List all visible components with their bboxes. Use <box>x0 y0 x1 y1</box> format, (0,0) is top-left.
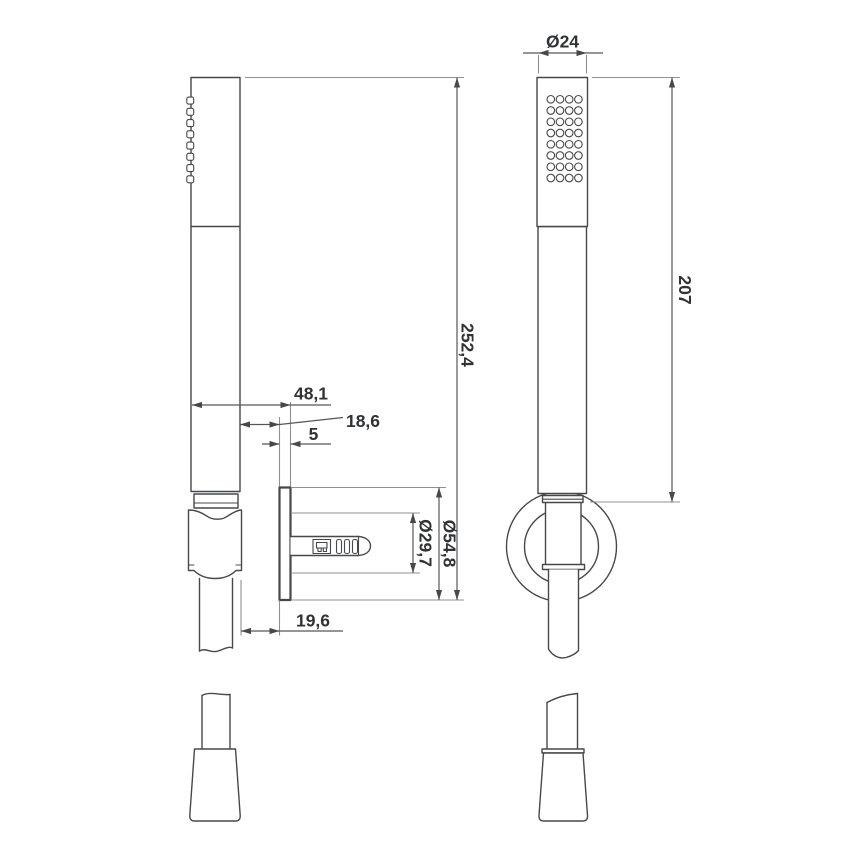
hose-connector-front <box>539 694 588 822</box>
dim-hose-wall-gap-label: 19,6 <box>296 611 330 631</box>
dim-handle-wall-gap-label: 18,6 <box>346 411 380 431</box>
handle-connector-ring-side <box>194 494 238 508</box>
dim-wall-to-front-label: 48,1 <box>294 384 328 404</box>
shower-hose-front <box>549 570 579 658</box>
shower-technical-drawing: 48,1 18,6 5 19,6 Ø29,7 Ø54,8 252,4 <box>0 0 868 868</box>
holder-side <box>189 510 242 579</box>
wall-anchor <box>291 537 371 556</box>
dim-plate-thickness-label: 5 <box>309 424 319 444</box>
dim-total-length-label: 252,4 <box>458 323 478 367</box>
hose-flange-front <box>543 565 585 570</box>
drawing-canvas: 48,1 18,6 5 19,6 Ø29,7 Ø54,8 252,4 <box>0 0 868 868</box>
handset-side-body <box>191 78 240 492</box>
dim-head-diameter-label: Ø24 <box>546 32 579 52</box>
side-view <box>187 78 371 822</box>
hose-connector-side <box>190 693 240 821</box>
front-view <box>507 78 617 822</box>
dim-hole-diameter-label: Ø29,7 <box>416 519 436 567</box>
dim-plate-diameter-label: Ø54,8 <box>440 520 460 568</box>
dim-head-length-label: 207 <box>675 275 695 304</box>
shower-hose-side <box>200 579 233 652</box>
handset-front-handle <box>538 227 587 494</box>
wall-plate-side <box>280 488 291 601</box>
